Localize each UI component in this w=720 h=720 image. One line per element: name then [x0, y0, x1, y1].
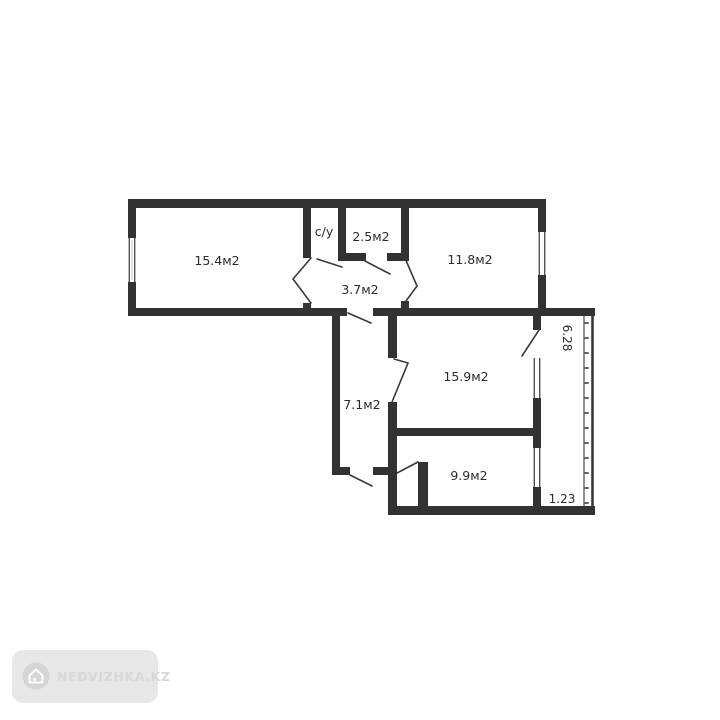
watermark-badge: NEDVIZHKA.KZ [12, 650, 171, 703]
wall-room118-left-stub [401, 301, 409, 316]
room-label-bathroom: с/у [315, 224, 334, 239]
wall-right-upper [538, 199, 546, 232]
windows [128, 232, 593, 506]
room-label-9-9: 9.9м2 [450, 468, 487, 483]
door-room99 [397, 462, 418, 473]
dimension-balcony-length: 6.28 [560, 325, 574, 352]
wall-top [128, 199, 546, 208]
walls [128, 199, 595, 515]
door-entry [350, 475, 372, 486]
house-icon-dot [33, 678, 36, 681]
floor-plan-page: 15.4м2 с/у 2.5м2 3.7м2 11.8м2 15.9м2 7.1… [0, 0, 720, 720]
floor-plan: 15.4м2 с/у 2.5м2 3.7м2 11.8м2 15.9м2 7.1… [0, 0, 720, 720]
wall-bottom [388, 506, 595, 515]
wall-corridor-right-lower [388, 402, 397, 514]
wall-room154-right [303, 199, 311, 258]
door-balcony [522, 330, 539, 356]
wall-bottom-left-segment [128, 308, 347, 316]
watermark-text: NEDVIZHKA.KZ [57, 669, 171, 684]
wall-room154-right-stub [303, 303, 311, 316]
wall-entry-jamb-right [373, 467, 388, 475]
wall-east-mid [533, 398, 541, 428]
wall-east-mid2 [533, 436, 541, 448]
room-label-15-9: 15.9м2 [443, 369, 488, 384]
wall-corridor-right-upper [388, 316, 397, 358]
wall-corridor-left [332, 316, 340, 475]
wall-room25-bottom-left [342, 253, 366, 261]
room-label-11-8: 11.8м2 [447, 252, 492, 267]
wall-left-upper [128, 199, 136, 238]
balcony-glazing [584, 316, 593, 506]
door-room118 [405, 258, 417, 301]
room-label-15-4: 15.4м2 [194, 253, 239, 268]
room-labels: 15.4м2 с/у 2.5м2 3.7м2 11.8м2 15.9м2 7.1… [194, 224, 492, 483]
window-left [128, 238, 136, 282]
dimension-balcony-width: 1.23 [549, 492, 576, 506]
room-label-7-1: 7.1м2 [343, 397, 380, 412]
wall-room118-left [401, 199, 409, 258]
door-room159 [392, 359, 408, 402]
wall-bathroom-right [338, 199, 346, 261]
window-room159 [533, 358, 541, 398]
wall-closet-stub [418, 462, 428, 506]
house-icon [23, 663, 50, 690]
room-label-3-7: 3.7м2 [341, 282, 378, 297]
wall-right-lower [538, 275, 546, 316]
dimension-labels: 6.28 1.23 [549, 325, 576, 506]
window-room99 [533, 448, 541, 487]
wall-entry-jamb-left [332, 467, 350, 475]
doors [293, 258, 539, 486]
room-label-2-5: 2.5м2 [352, 229, 389, 244]
window-right [538, 232, 546, 275]
door-room154 [293, 258, 311, 303]
wall-divider-159-99 [397, 428, 541, 436]
wall-balcony-door-stub [533, 316, 541, 330]
door-room25 [365, 261, 390, 274]
door-hall-corridor [348, 313, 371, 323]
